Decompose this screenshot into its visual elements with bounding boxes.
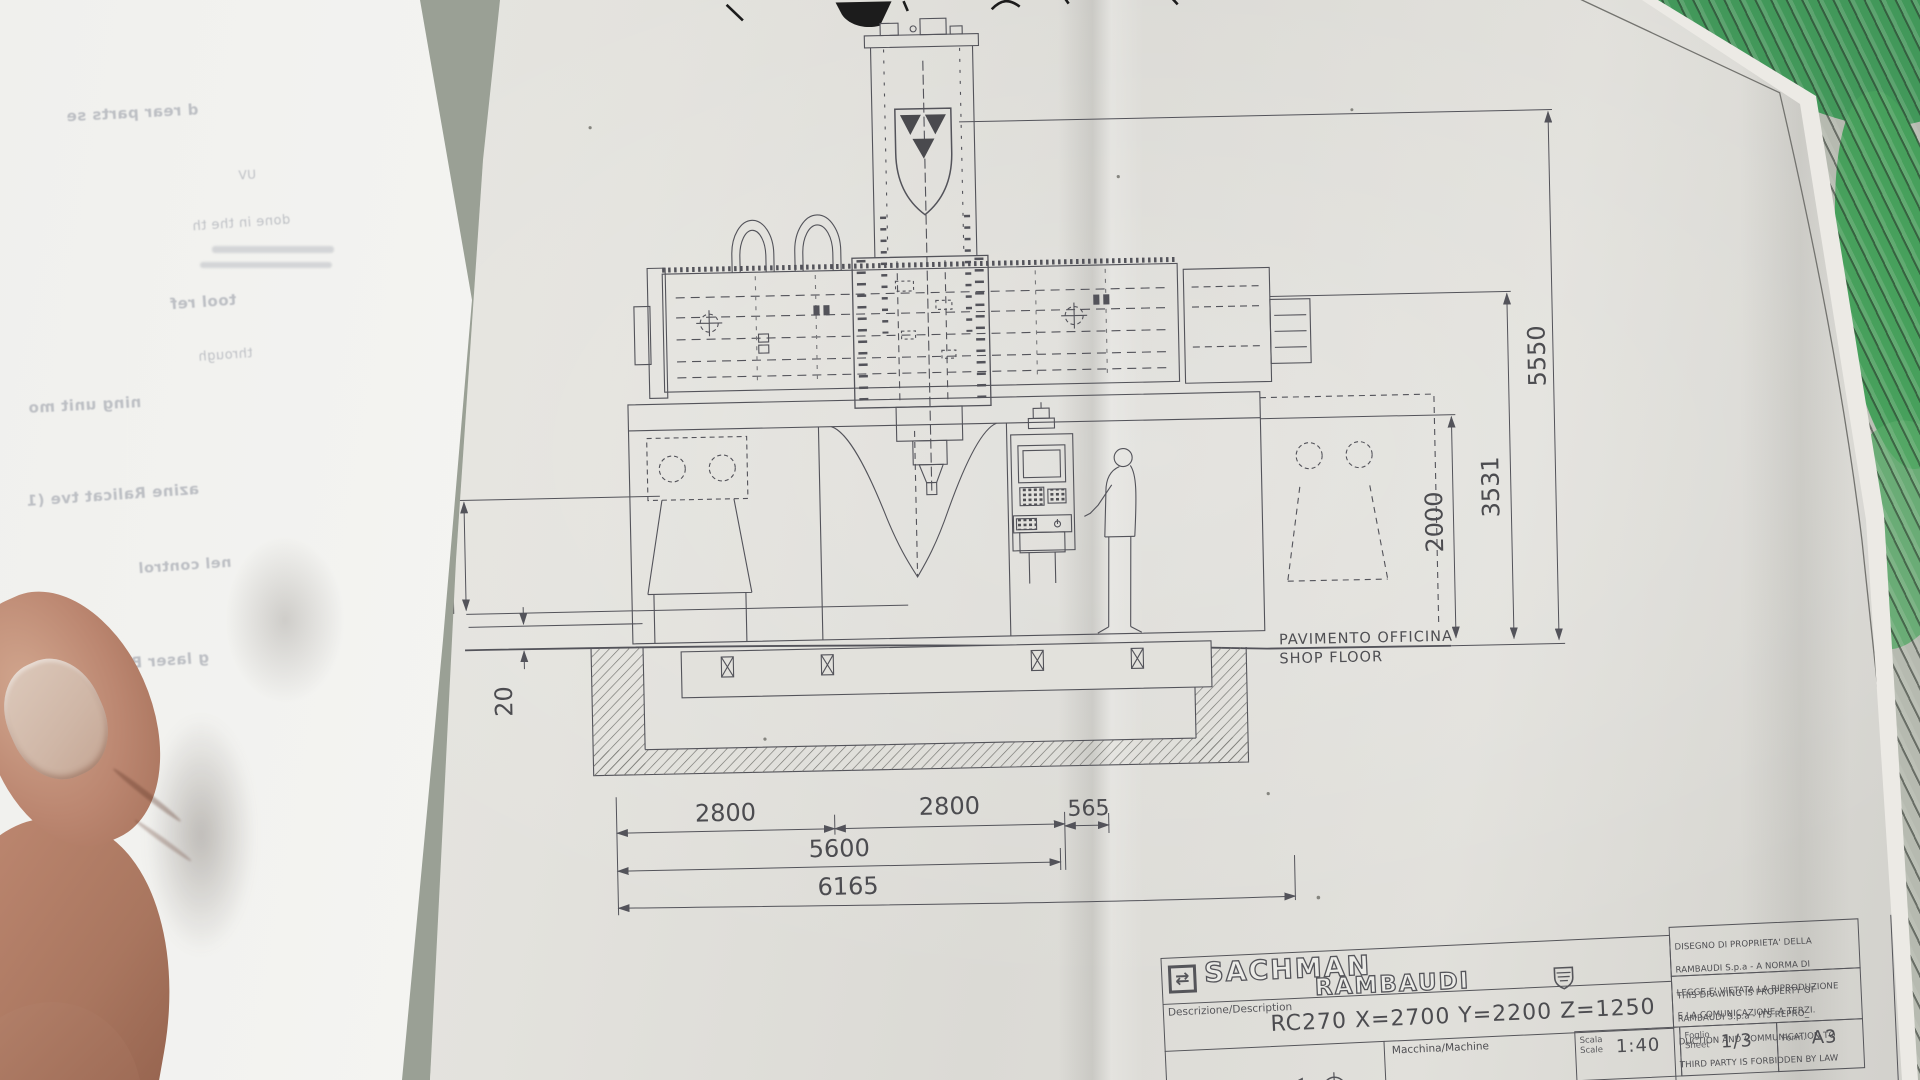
scale-label-en: Scale — [1580, 1045, 1603, 1056]
bleed-through-text: d rear parts se — [66, 101, 199, 126]
dim-rail-height: 3531 — [1476, 456, 1505, 518]
dim-overhang: 565 — [1067, 796, 1110, 822]
floor-label-en: SHOP FLOOR — [1279, 649, 1383, 667]
dim-gap: 20 — [490, 686, 519, 717]
bleed-through-text: tool ref — [169, 291, 236, 314]
dim-half-span-right: 2800 — [919, 792, 981, 821]
ballscrew-symbols — [696, 295, 1110, 355]
dim-total-height: 5550 — [1522, 325, 1551, 387]
saddle-spindle-head — [852, 255, 993, 496]
sheet-cell: Foglio Sheet 1/3 — [1679, 1022, 1779, 1076]
legal-en-line: THIS DRAWING IS PROPERTY OF — [1676, 985, 1815, 1001]
thumb-holding-page — [0, 580, 326, 1080]
cross-rail — [633, 255, 1312, 399]
sheet-value: 1/3 — [1720, 1030, 1753, 1052]
format-cell: Form. A3 — [1776, 1018, 1865, 1072]
dim-span: 5600 — [808, 834, 870, 863]
bleed-through-text: UV — [238, 168, 257, 183]
machine-label: Macchina/Machine — [1392, 1040, 1490, 1056]
machine-front-elevation: 1420 Z = 1250 300 20 2000 3531 5550 2800… — [330, 0, 1899, 933]
sheet-label-en: Sheet — [1685, 1040, 1710, 1051]
scale-value: 1:40 — [1615, 1034, 1660, 1057]
bleed-through-text: through — [198, 346, 254, 365]
bleed-through-text: azine Ralicat tve (1 — [26, 480, 200, 510]
projection-symbol-icon — [1272, 1064, 1364, 1080]
bleed-through-blur — [212, 246, 334, 253]
dimension-labels: 1420 Z = 1250 300 20 2000 3531 5550 2800… — [337, 325, 1562, 911]
cable-loops — [731, 214, 841, 272]
keypad — [1020, 487, 1044, 505]
bleed-through-text: done in the th — [192, 213, 291, 235]
operator-figure — [1083, 448, 1142, 633]
scale-cell: Scala Scale 1:40 — [1574, 1026, 1682, 1080]
cell-divider — [1383, 1041, 1388, 1080]
cnc-control-panel — [1010, 402, 1076, 584]
dim-body-height: 2000 — [1420, 491, 1449, 553]
format-label: Form. — [1782, 1034, 1807, 1045]
brand-mark-icon: ⇄ — [1168, 964, 1197, 993]
photo-of-technical-drawing: 1420 Z = 1250 300 20 2000 3531 5550 2800… — [0, 0, 1920, 1080]
dim-overall-width: 6165 — [817, 872, 879, 901]
legal-it-line: DISEGNO DI PROPRIETA' DELLA — [1674, 936, 1812, 952]
bleed-through-blur — [200, 262, 332, 268]
bleed-through-text: ning unit mo — [28, 393, 142, 417]
format-value: A3 — [1811, 1026, 1838, 1048]
dim-half-span-left: 2800 — [695, 798, 757, 827]
